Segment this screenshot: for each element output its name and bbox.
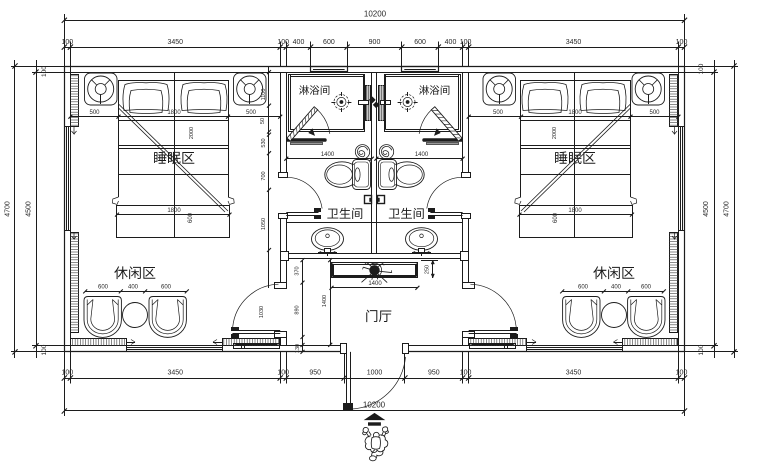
svg-text:3450: 3450 [566, 39, 582, 46]
svg-text:400: 400 [128, 284, 139, 290]
svg-text:100: 100 [277, 370, 289, 377]
svg-text:1100: 1100 [261, 89, 267, 101]
svg-text:10200: 10200 [363, 401, 386, 410]
svg-text:1800: 1800 [167, 110, 181, 116]
svg-text:130: 130 [295, 344, 301, 353]
svg-text:4500: 4500 [703, 201, 710, 217]
svg-text:890: 890 [295, 305, 301, 314]
svg-text:1400: 1400 [415, 152, 429, 158]
svg-text:500: 500 [246, 110, 257, 116]
svg-text:1000: 1000 [367, 370, 383, 377]
svg-text:3450: 3450 [168, 39, 184, 46]
svg-text:1400: 1400 [321, 152, 335, 158]
svg-text:100: 100 [460, 370, 472, 377]
svg-text:250: 250 [425, 265, 431, 274]
svg-text:700: 700 [261, 171, 267, 180]
svg-text:100: 100 [41, 344, 48, 355]
svg-text:530: 530 [261, 138, 267, 147]
svg-text:100: 100 [277, 39, 289, 46]
svg-text:600: 600 [98, 284, 109, 290]
svg-text:10200: 10200 [364, 10, 387, 19]
svg-text:600: 600 [553, 212, 559, 223]
svg-text:50: 50 [260, 118, 266, 124]
svg-text:100: 100 [460, 39, 472, 46]
svg-text:950: 950 [428, 370, 440, 377]
svg-text:950: 950 [309, 370, 321, 377]
svg-text:4500: 4500 [26, 201, 33, 217]
svg-text:1800: 1800 [568, 208, 582, 214]
svg-text:3450: 3450 [168, 370, 184, 377]
svg-text:4700: 4700 [724, 201, 731, 217]
svg-text:600: 600 [161, 284, 172, 290]
svg-text:500: 500 [89, 110, 100, 116]
svg-text:100: 100 [698, 63, 705, 74]
svg-text:3450: 3450 [566, 370, 582, 377]
svg-text:100: 100 [698, 344, 705, 355]
svg-text:100: 100 [61, 370, 73, 377]
svg-text:1800: 1800 [568, 110, 582, 116]
svg-text:500: 500 [493, 110, 504, 116]
svg-text:1030: 1030 [259, 306, 265, 318]
svg-text:400: 400 [611, 284, 622, 290]
svg-text:100: 100 [61, 39, 73, 46]
svg-text:100: 100 [676, 39, 688, 46]
svg-text:500: 500 [649, 110, 660, 116]
svg-text:600: 600 [578, 284, 589, 290]
svg-text:1400: 1400 [368, 281, 382, 287]
svg-text:600: 600 [188, 212, 194, 223]
svg-text:4700: 4700 [5, 201, 12, 217]
svg-text:400: 400 [293, 39, 305, 46]
svg-text:600: 600 [414, 39, 426, 46]
svg-text:100: 100 [676, 370, 688, 377]
svg-text:370: 370 [295, 266, 301, 275]
svg-text:2000: 2000 [552, 127, 558, 139]
svg-text:1050: 1050 [261, 218, 267, 230]
svg-text:100: 100 [41, 66, 48, 77]
svg-text:1400: 1400 [322, 295, 328, 307]
svg-text:600: 600 [323, 39, 335, 46]
svg-text:2000: 2000 [189, 127, 195, 139]
svg-text:900: 900 [369, 39, 381, 46]
svg-text:600: 600 [641, 284, 652, 290]
svg-text:400: 400 [445, 39, 457, 46]
svg-text:1800: 1800 [167, 208, 181, 214]
